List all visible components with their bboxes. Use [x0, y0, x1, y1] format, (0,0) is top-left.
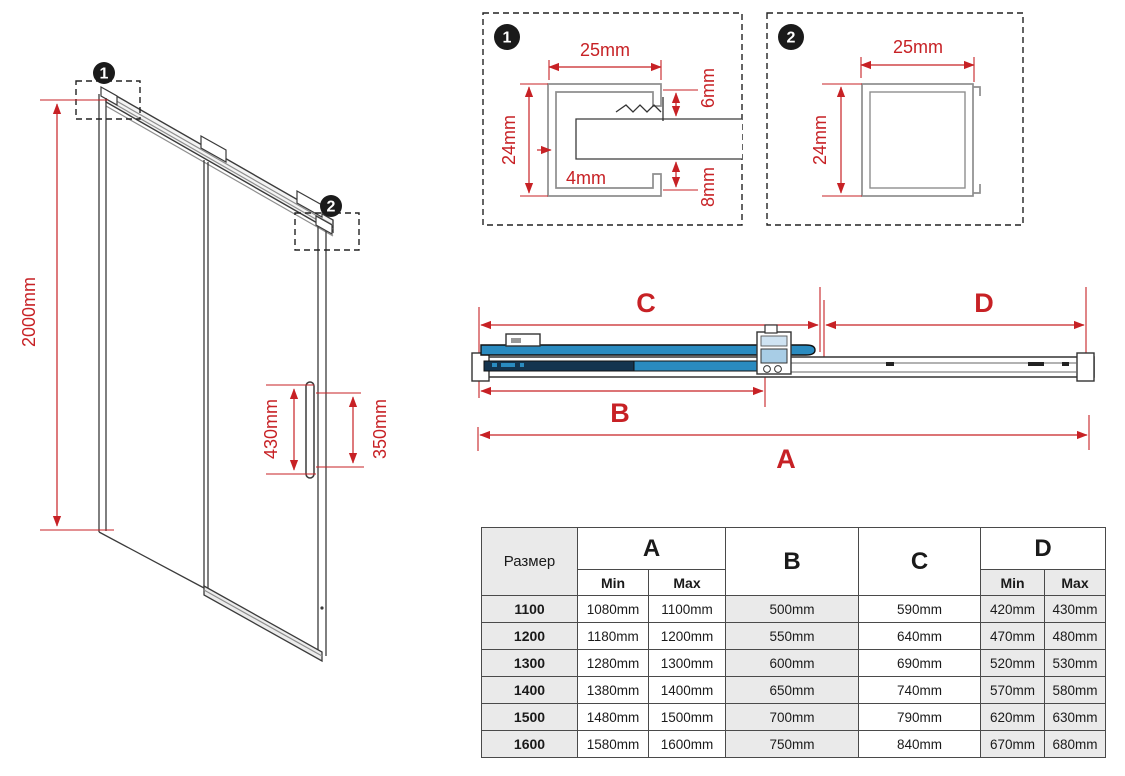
dim-handle-350: 350mm — [370, 399, 390, 459]
table-row: 1600 1580mm 1600mm 750mm 840mm 670mm 680… — [482, 731, 1106, 758]
size-label: 1100 — [482, 596, 578, 623]
a-min-value: 1380mm — [578, 677, 649, 704]
c-value: 690mm — [859, 650, 981, 677]
table-row: 1500 1480mm 1500mm 700mm 790mm 620mm 630… — [482, 704, 1106, 731]
table-row: 1300 1280mm 1300mm 600mm 690mm 520mm 530… — [482, 650, 1106, 677]
dim-label-b: B — [610, 398, 630, 428]
detail2-number: 2 — [787, 30, 796, 47]
d-max-value: 530mm — [1045, 650, 1106, 677]
a-max-value: 1200mm — [649, 623, 726, 650]
b-value: 750mm — [726, 731, 859, 758]
d-min-value: 570mm — [981, 677, 1045, 704]
a-min-value: 1080mm — [578, 596, 649, 623]
d-max-value: 580mm — [1045, 677, 1106, 704]
a-max-value: 1100mm — [649, 596, 726, 623]
d-min-value: 670mm — [981, 731, 1045, 758]
d-max-header: Max — [1045, 570, 1106, 596]
d-max-value: 480mm — [1045, 623, 1106, 650]
size-column-header: Размер — [482, 528, 578, 596]
size-label: 1300 — [482, 650, 578, 677]
a-min-value: 1280mm — [578, 650, 649, 677]
d-max-value: 680mm — [1045, 731, 1106, 758]
column-header-c: C — [859, 528, 981, 596]
detail2-dim-25: 25mm — [893, 37, 943, 57]
d-min-value: 620mm — [981, 704, 1045, 731]
detail1-dim-8: 8mm — [698, 167, 718, 207]
detail1-dim-25: 25mm — [580, 40, 630, 60]
a-max-value: 1400mm — [649, 677, 726, 704]
table-row: 1400 1380mm 1400mm 650mm 740mm 570mm 580… — [482, 677, 1106, 704]
d-min-value: 420mm — [981, 596, 1045, 623]
detail2-dim-24: 24mm — [810, 115, 830, 165]
a-max-header: Max — [649, 570, 726, 596]
b-value: 650mm — [726, 677, 859, 704]
size-label: 1200 — [482, 623, 578, 650]
rail-right-cap — [1077, 353, 1094, 381]
glass-panel-section — [576, 119, 742, 159]
fixed-glass-blue — [634, 361, 757, 371]
d-max-value: 430mm — [1045, 596, 1106, 623]
detail1-number: 1 — [503, 30, 512, 47]
d-min-value: 470mm — [981, 623, 1045, 650]
square-profile-tabs — [973, 87, 980, 193]
d-max-value: 630mm — [1045, 704, 1106, 731]
a-max-value: 1300mm — [649, 650, 726, 677]
size-label: 1500 — [482, 704, 578, 731]
column-header-b: B — [726, 528, 859, 596]
a-min-header: Min — [578, 570, 649, 596]
column-header-a: A — [578, 528, 726, 570]
c-value: 840mm — [859, 731, 981, 758]
b-value: 600mm — [726, 650, 859, 677]
c-value: 590mm — [859, 596, 981, 623]
detail1-dim-6: 6mm — [698, 68, 718, 108]
a-max-value: 1500mm — [649, 704, 726, 731]
c-value: 740mm — [859, 677, 981, 704]
table-row: 1100 1080mm 1100mm 500mm 590mm 420mm 430… — [482, 596, 1106, 623]
dim-height-2000: 2000mm — [19, 277, 39, 347]
technical-drawing-sheet: 1 2 2000mm 430mm 350mm 1 25mm — [0, 0, 1125, 776]
b-value: 500mm — [726, 596, 859, 623]
a-min-value: 1580mm — [578, 731, 649, 758]
b-value: 550mm — [726, 623, 859, 650]
dim-handle-430: 430mm — [261, 399, 281, 459]
c-value: 640mm — [859, 623, 981, 650]
a-max-value: 1600mm — [649, 731, 726, 758]
dim-label-d: D — [974, 288, 994, 318]
column-header-d: D — [981, 528, 1106, 570]
b-value: 700mm — [726, 704, 859, 731]
a-min-value: 1480mm — [578, 704, 649, 731]
marker-1-number: 1 — [100, 66, 109, 83]
table-row: 1200 1180mm 1200mm 550mm 640mm 470mm 480… — [482, 623, 1106, 650]
detail-1-section: 1 25mm 24mm 6mm 8mm 4mm — [483, 13, 742, 225]
door-isometric-view: 1 2 2000mm 430mm 350mm — [19, 62, 390, 661]
size-table: Размер A B C D Min Max Min Max 1100 1080… — [481, 527, 1106, 758]
detail1-dim-4: 4mm — [566, 168, 606, 188]
size-label: 1600 — [482, 731, 578, 758]
detail1-dim-24: 24mm — [499, 115, 519, 165]
dim-label-a: A — [776, 444, 796, 474]
square-profile-inner — [870, 92, 965, 188]
door-handle — [306, 382, 314, 478]
detail-2-section: 2 25mm 24mm — [767, 13, 1023, 225]
c-value: 790mm — [859, 704, 981, 731]
d-min-header: Min — [981, 570, 1045, 596]
a-min-value: 1180mm — [578, 623, 649, 650]
rail-top-view: C D B A — [472, 287, 1094, 474]
size-label: 1400 — [482, 677, 578, 704]
d-min-value: 520mm — [981, 650, 1045, 677]
marker-2-number: 2 — [327, 199, 336, 216]
dim-label-c: C — [636, 288, 656, 318]
